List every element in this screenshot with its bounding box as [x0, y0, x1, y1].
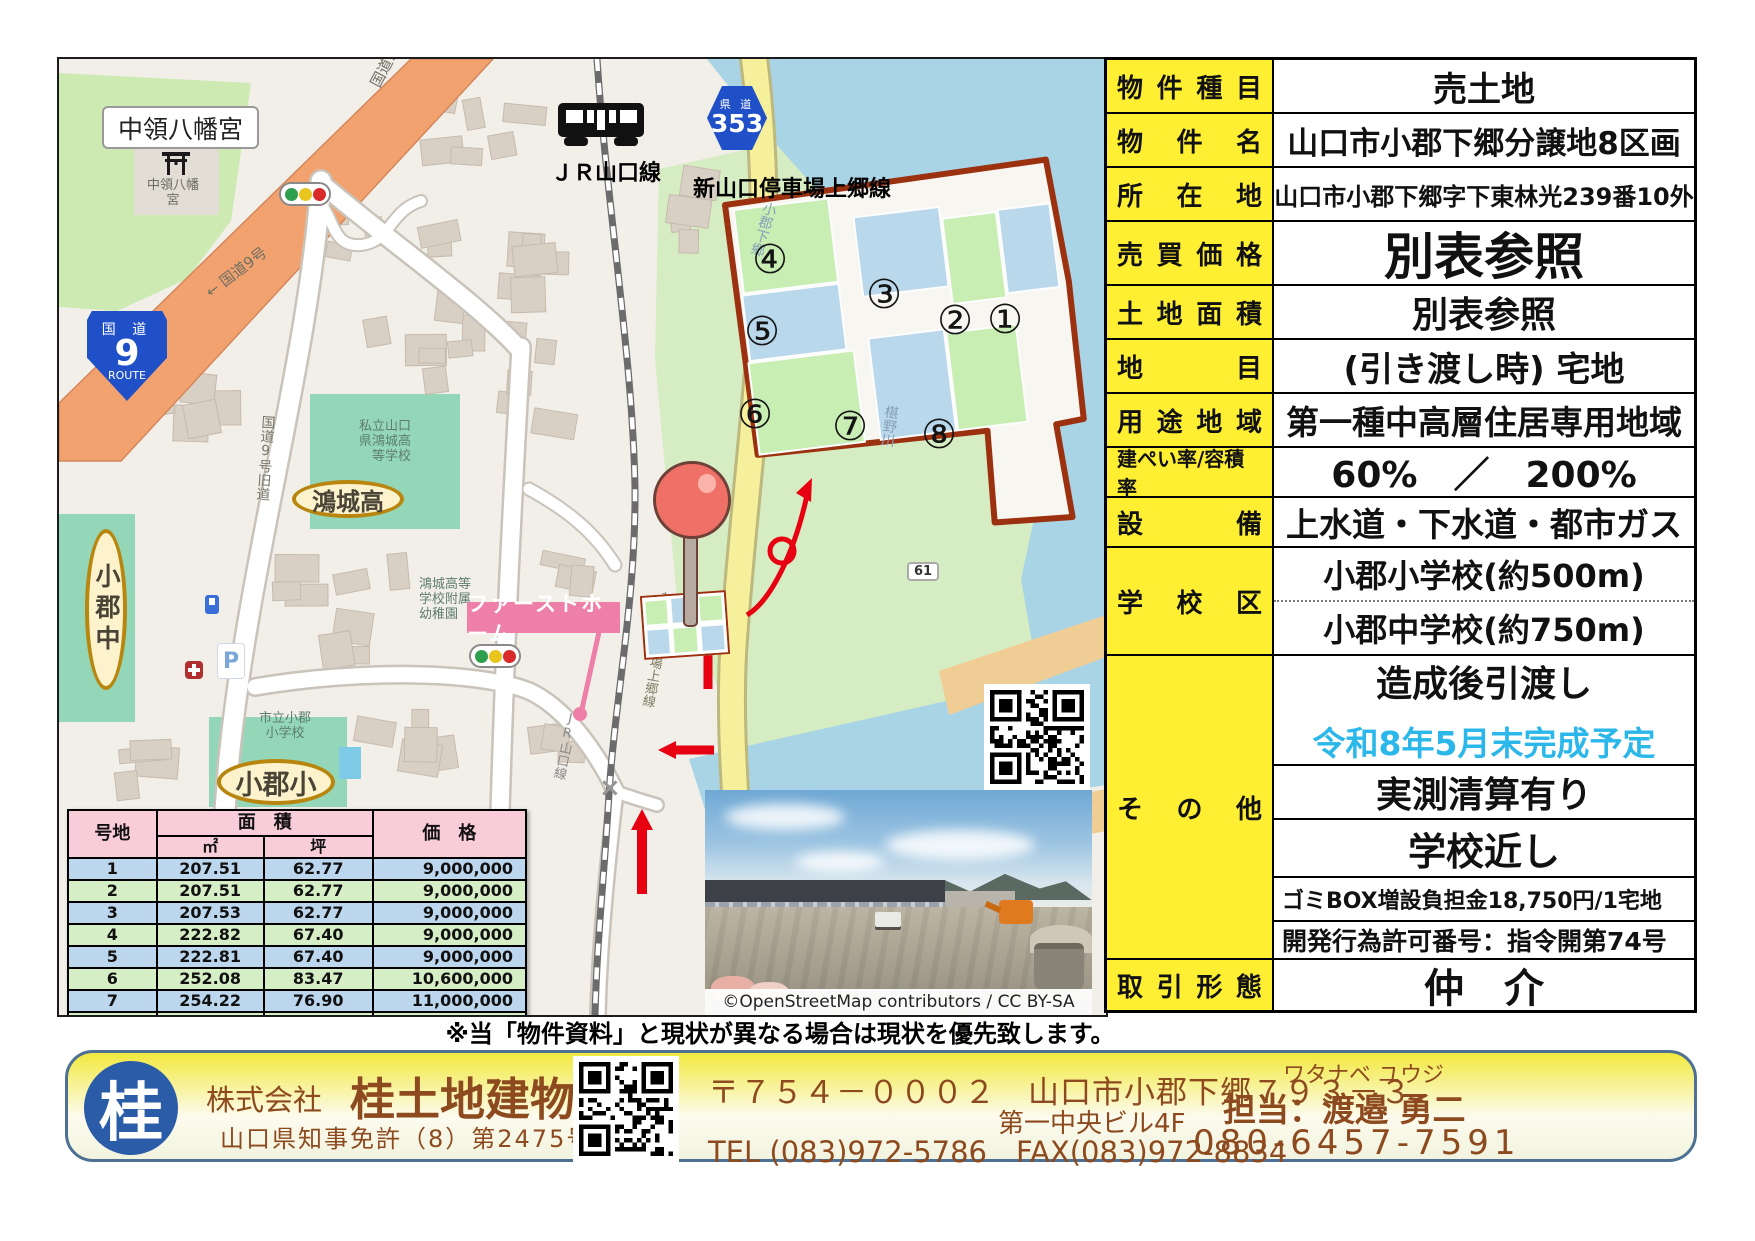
first-home-label: ファーストホーム	[467, 602, 620, 633]
price-table: 号地 面 積 価 格 ㎡ 坪 1207.5162.779,000,000 220…	[67, 809, 527, 1017]
city-es-map-text: 市立小郡 小学校	[259, 711, 311, 741]
photo-excavator	[999, 900, 1033, 924]
price-row: 1207.5162.779,000,000	[68, 858, 526, 880]
plot-number-4: ④	[752, 237, 788, 283]
plot-number-5: ⑤	[744, 309, 780, 355]
price-row: 5222.8167.409,000,000	[68, 946, 526, 968]
shrine-name: 中領八幡宮	[118, 110, 243, 146]
osm-attribution: ©OpenStreetMap contributors / CC BY-SA	[705, 989, 1092, 1015]
ogori-es-oval: 小郡小	[217, 759, 335, 805]
price-row: 2207.5162.779,000,000	[68, 880, 526, 902]
map-qr-code	[984, 684, 1090, 790]
plot-number-6: ⑥	[737, 392, 773, 438]
company-logo: 桂	[84, 1061, 178, 1155]
info-row-name: 物件名 山口市小郡下郷分譲地8区画	[1107, 114, 1694, 168]
prefectural-road-name: 新山口停車場上郷線	[693, 171, 891, 203]
jr-line-label: ＪＲ山口線	[551, 155, 661, 187]
info-row-school-district: 学校区 小郡小学校(約500m) 小郡中学校(約750m)	[1107, 548, 1694, 656]
info-row-address: 所在地 山口市小郡下郷字下東林光239番10外	[1107, 168, 1694, 222]
plot-number-8: ⑧	[921, 412, 957, 458]
property-info-table: 物件種目 売土地 物件名 山口市小郡下郷分譲地8区画 所在地 山口市小郡下郷字下…	[1104, 57, 1697, 1013]
price-header-sqm: ㎡	[157, 836, 264, 858]
map-pin-stem	[683, 527, 698, 627]
contact-mobile: 080-6457-7591	[1193, 1123, 1521, 1163]
info-row-land-category: 地目 (引き渡し時) 宅地	[1107, 340, 1694, 394]
price-header-area: 面 積	[157, 810, 373, 836]
disclaimer-text: ※当「物件資料」と現状が異なる場合は現状を優先致します。	[300, 1014, 1260, 1049]
shrine-map-text: 中領八幡 宮	[147, 178, 199, 208]
info-row-price: 売買価格 別表参照	[1107, 222, 1694, 286]
site-photo: ©OpenStreetMap contributors / CC BY-SA	[705, 790, 1092, 1015]
info-row-other: その他 造成後引渡し 令和8年5月末完成予定 実測清算有り 学校近し ゴミBOX…	[1107, 656, 1694, 960]
company-prefix: 株式会社	[206, 1077, 322, 1119]
photo-bucket	[1034, 943, 1084, 993]
location-map: 中領八幡宮 中領八幡 宮 国 道 9 ROUTE 国道9号 ← 国道9号 国道9…	[57, 57, 1108, 1017]
school-pool	[339, 747, 361, 779]
parking-icon: P	[217, 643, 245, 679]
license-number: 山口県知事免許（8）第2475号	[220, 1119, 592, 1154]
kojo-high-oval: 鴻城高	[292, 480, 404, 518]
plot-number-7: ⑦	[832, 404, 868, 450]
price-row: 3207.5362.779,000,000	[68, 902, 526, 924]
fuel-station-icon	[205, 595, 219, 614]
plot-number-2: ②	[937, 298, 973, 344]
plot-number-3: ③	[866, 272, 902, 318]
kindergarten-map-text: 鴻城高等 学校附属 幼稚園	[419, 577, 471, 622]
traffic-light-icon	[279, 182, 331, 206]
map-pin-icon	[653, 461, 731, 539]
train-icon	[556, 101, 646, 149]
plot-number-1: ①	[987, 297, 1023, 343]
route-61-badge: 61	[907, 562, 939, 581]
info-row-land-area: 土地面積 別表参照	[1107, 286, 1694, 340]
kojo-highschool-map-text: 私立山口 県鴻城高 等学校	[359, 419, 411, 464]
price-header-price: 価 格	[373, 810, 526, 858]
photo-truck	[875, 912, 901, 927]
info-row-transaction-type: 取引形態 仲 介	[1107, 960, 1694, 1010]
price-row: 4222.8267.409,000,000	[68, 924, 526, 946]
info-row-zoning: 用途地域 第一種中高層住居専用地域	[1107, 394, 1694, 448]
price-row: 6252.0883.4710,600,000	[68, 968, 526, 990]
traffic-light-icon-2	[469, 644, 521, 668]
info-row-type: 物件種目 売土地	[1107, 60, 1694, 114]
price-row: 7254.2276.9011,000,000	[68, 990, 526, 1012]
footer-qr-code	[573, 1056, 679, 1162]
shrine-name-box: 中領八幡宮	[102, 106, 259, 149]
rail-crossing-icon: ×	[599, 773, 621, 803]
property-flyer: 中領八幡宮 中領八幡 宮 国 道 9 ROUTE 国道9号 ← 国道9号 国道9…	[0, 0, 1755, 1241]
company-footer: 桂 株式会社 桂土地建物 山口県知事免許（8）第2475号 〒７５４－０００２ …	[65, 1050, 1697, 1162]
ogori-jhs-oval: 小郡中	[85, 529, 127, 690]
info-row-coverage-ratio: 建ぺい率/容積率 60% ／ 200%	[1107, 448, 1694, 498]
price-header-tsubo: 坪	[264, 836, 373, 858]
torii-icon	[161, 151, 191, 177]
hospital-icon	[185, 661, 203, 679]
price-header-lot: 号地	[68, 810, 157, 858]
info-row-utilities: 設備 上水道・下水道・都市ガス	[1107, 498, 1694, 548]
